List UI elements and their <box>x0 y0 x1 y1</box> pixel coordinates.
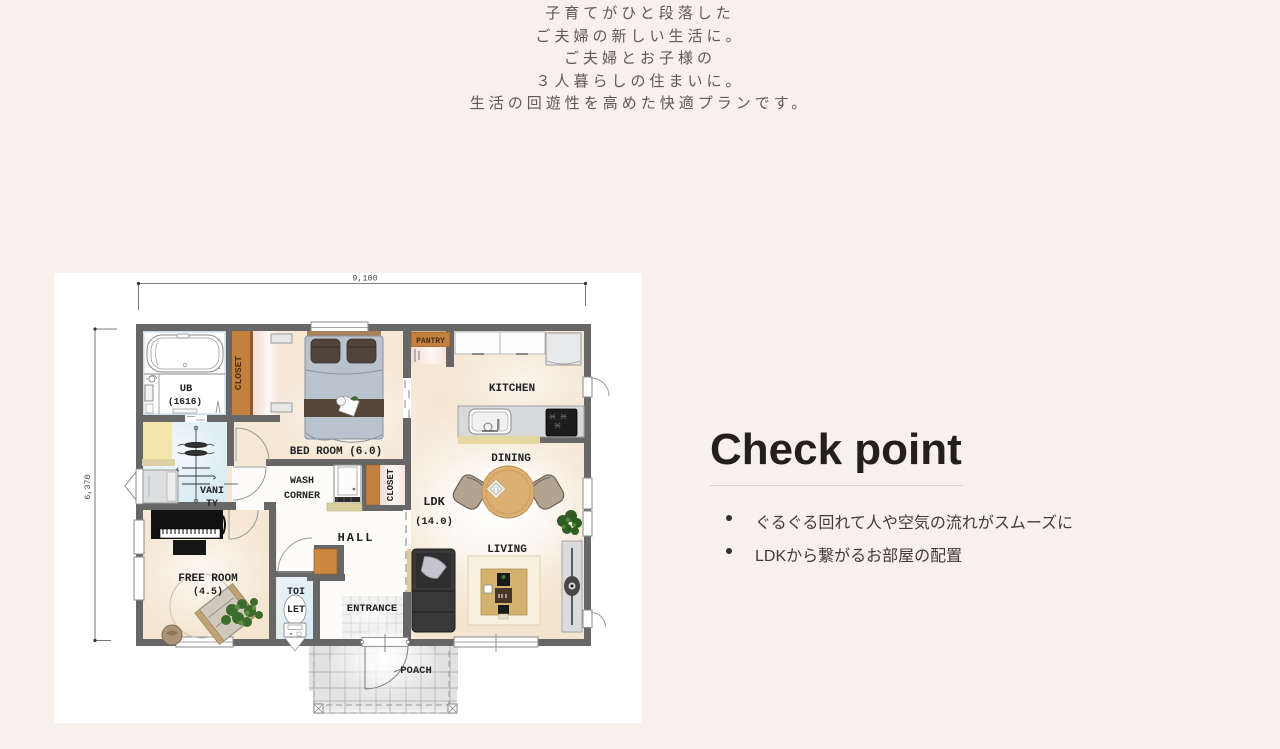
svg-text:CORNER: CORNER <box>284 491 320 502</box>
svg-text:FREE ROOM: FREE ROOM <box>178 573 238 585</box>
svg-text:PANTRY: PANTRY <box>416 337 445 346</box>
svg-text:HALL: HALL <box>338 531 375 545</box>
svg-text:CLOSET: CLOSET <box>233 356 244 391</box>
svg-text:UB: UB <box>180 383 193 395</box>
svg-text:VANI: VANI <box>200 486 224 497</box>
svg-text:(4.5): (4.5) <box>193 586 223 598</box>
svg-text:LDK: LDK <box>423 495 445 509</box>
svg-text:(1616): (1616) <box>168 396 202 407</box>
svg-text:BED ROOM (6.0): BED ROOM (6.0) <box>290 446 382 458</box>
svg-text:TY: TY <box>206 499 218 510</box>
svg-text:9,100: 9,100 <box>352 274 378 284</box>
svg-text:LET: LET <box>287 605 305 616</box>
svg-text:WASH: WASH <box>290 476 314 487</box>
svg-text:TOI: TOI <box>287 587 305 598</box>
svg-text:6,370: 6,370 <box>83 474 93 500</box>
svg-text:KITCHEN: KITCHEN <box>489 383 535 395</box>
svg-text:ENTRANCE: ENTRANCE <box>347 603 397 615</box>
svg-text:LIVING: LIVING <box>487 544 527 556</box>
svg-text:POACH: POACH <box>400 665 432 677</box>
svg-text:CLOSET: CLOSET <box>386 468 396 501</box>
svg-text:DINING: DINING <box>491 453 531 465</box>
svg-text:(14.0): (14.0) <box>415 516 453 528</box>
